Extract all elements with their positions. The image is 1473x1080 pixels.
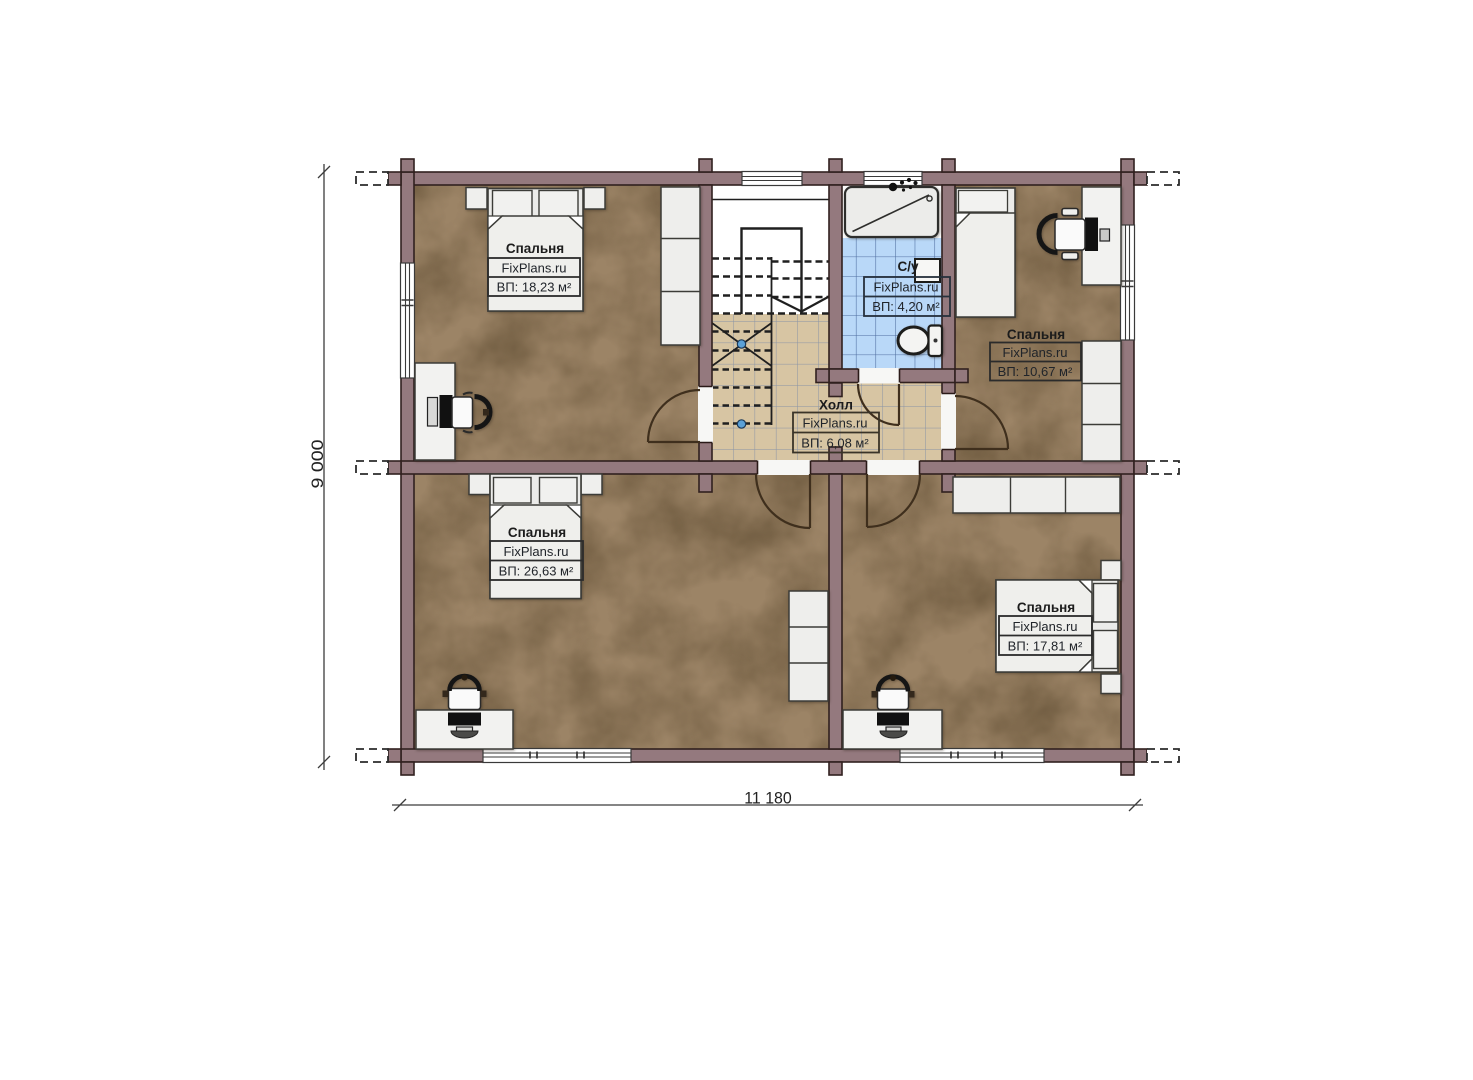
svg-text:FixPlans.ru: FixPlans.ru — [1012, 619, 1077, 634]
svg-text:9 000: 9 000 — [308, 440, 327, 489]
svg-text:ВП: 10,67 м²: ВП: 10,67 м² — [998, 364, 1073, 379]
svg-text:Спальня: Спальня — [1007, 327, 1065, 342]
svg-text:FixPlans.ru: FixPlans.ru — [501, 261, 566, 276]
svg-text:Спальня: Спальня — [506, 241, 564, 256]
svg-text:ВП: 26,63 м²: ВП: 26,63 м² — [499, 564, 574, 579]
svg-text:Холл: Холл — [819, 398, 853, 413]
svg-text:С/у: С/у — [897, 259, 919, 274]
svg-text:ВП: 17,81 м²: ВП: 17,81 м² — [1008, 639, 1083, 654]
svg-text:FixPlans.ru: FixPlans.ru — [802, 416, 867, 431]
svg-text:Спальня: Спальня — [1017, 600, 1075, 615]
svg-text:FixPlans.ru: FixPlans.ru — [1002, 345, 1067, 360]
svg-text:ВП: 4,20 м²: ВП: 4,20 м² — [872, 299, 940, 314]
svg-text:ВП: 6,08 м²: ВП: 6,08 м² — [801, 436, 869, 451]
svg-text:FixPlans.ru: FixPlans.ru — [503, 544, 568, 559]
svg-text:ВП: 18,23 м²: ВП: 18,23 м² — [497, 280, 572, 295]
svg-text:Спальня: Спальня — [508, 525, 566, 540]
svg-text:11 180: 11 180 — [744, 789, 792, 808]
svg-text:FixPlans.ru: FixPlans.ru — [873, 280, 938, 295]
